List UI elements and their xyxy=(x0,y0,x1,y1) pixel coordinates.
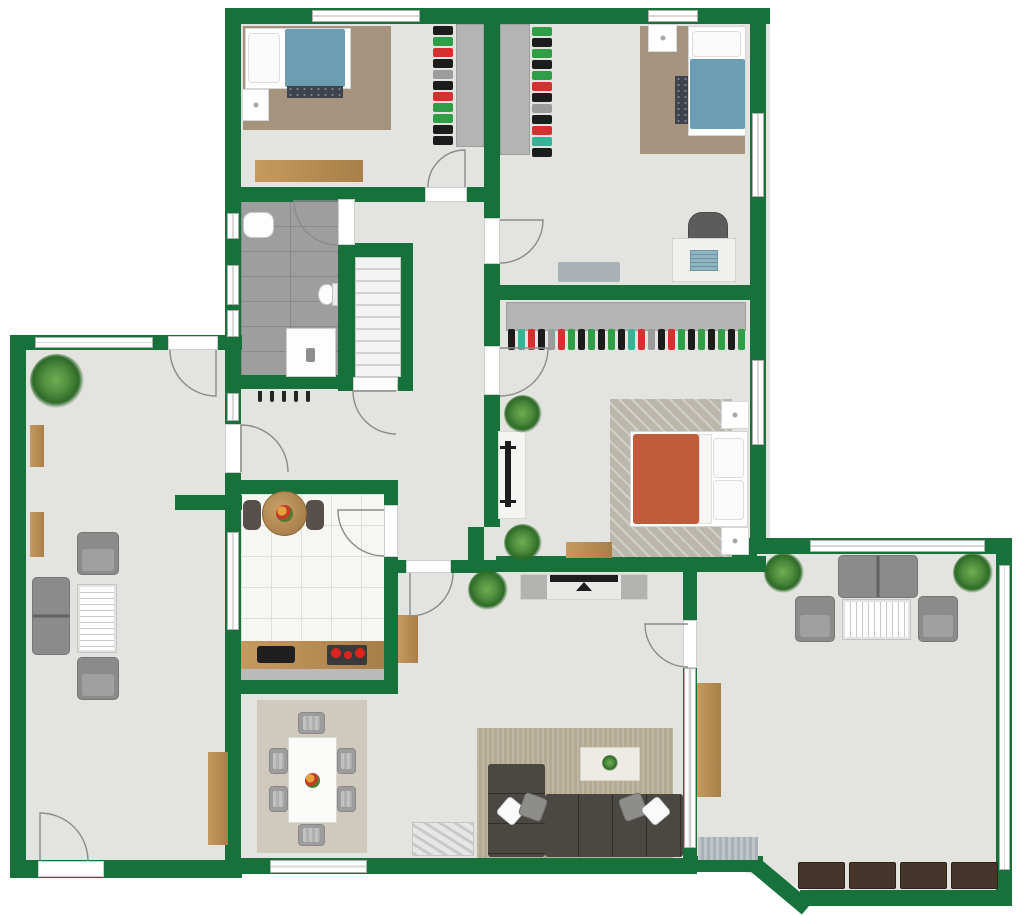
window-sunroom-right xyxy=(999,565,1010,870)
repeat-item xyxy=(270,391,274,402)
repeat-item xyxy=(608,329,615,350)
repeat-item xyxy=(532,60,552,69)
window-bedroom2-top xyxy=(648,10,698,22)
door-threshold-hall-living xyxy=(406,560,451,573)
repeat-item xyxy=(738,329,745,350)
master-nightstand-bottom xyxy=(721,527,749,555)
living-speaker-right xyxy=(621,575,647,599)
kitchen-burner-2 xyxy=(344,651,352,659)
door-threshold-lounge-top xyxy=(168,336,218,350)
repeat-item xyxy=(282,391,286,402)
bedroom2-nightstand xyxy=(648,24,677,52)
window-bathroom-2 xyxy=(227,265,239,305)
sunroom-plant-right xyxy=(953,553,993,593)
bedroom2-blanket xyxy=(690,59,745,129)
lounge-shelf-top xyxy=(30,425,44,467)
kitchen-fruit-bowl xyxy=(276,505,293,522)
living-coffee-table-plant xyxy=(602,755,618,771)
master-clothes-rail xyxy=(508,329,745,351)
repeat-item xyxy=(306,391,310,402)
repeat-item xyxy=(532,71,552,80)
sunroom-coffee-table xyxy=(843,600,910,639)
door-threshold-lounge-entry xyxy=(38,861,104,877)
dining-chair-right-1 xyxy=(337,748,356,774)
bedroom1-pillow xyxy=(248,33,280,83)
repeat-item xyxy=(951,862,998,889)
bedroom1-blanket xyxy=(285,29,345,87)
living-plant xyxy=(468,570,508,610)
shower-fixture xyxy=(306,348,315,362)
lounge-sideboard xyxy=(208,752,228,845)
door-threshold-bathroom xyxy=(338,199,355,245)
repeat-item xyxy=(638,329,645,350)
wall-sunroom-bottom xyxy=(800,890,1012,906)
living-wall-shelf xyxy=(398,615,418,663)
window-entry-hall xyxy=(227,393,239,421)
repeat-item xyxy=(588,329,595,350)
repeat-item xyxy=(433,70,453,79)
bedroom1-wardrobe xyxy=(456,24,484,147)
kitchen-chair-left xyxy=(243,500,261,530)
bedroom1-nightstand xyxy=(242,89,269,121)
master-tv-foot-top xyxy=(500,446,516,449)
repeat-item xyxy=(532,49,552,58)
repeat-item xyxy=(532,82,552,91)
repeat-item xyxy=(708,329,715,350)
repeat-item xyxy=(532,148,552,157)
master-plant-top xyxy=(504,395,542,433)
wall-kitchen-bottom xyxy=(228,680,398,694)
door-threshold-sunroom xyxy=(683,620,697,668)
kitchen-counter-edge xyxy=(241,669,384,680)
bathtub xyxy=(243,212,274,238)
dining-chair-left-1 xyxy=(269,748,288,774)
wall-kitchen-top xyxy=(228,480,398,494)
repeat-item xyxy=(528,329,535,350)
master-tv xyxy=(505,441,511,507)
repeat-item xyxy=(648,329,655,350)
repeat-item xyxy=(433,103,453,112)
glass-partition xyxy=(684,668,696,848)
repeat-item xyxy=(688,329,695,350)
wall-bedroom2-bottom xyxy=(484,285,766,300)
bedroom2-side-runner xyxy=(675,76,688,124)
repeat-item xyxy=(658,329,665,350)
dining-chair-bottom xyxy=(298,824,325,846)
kitchen-chair-right xyxy=(306,500,324,530)
coat-rack xyxy=(258,391,312,403)
door-threshold-master xyxy=(484,346,500,395)
staircase xyxy=(355,257,401,377)
repeat-item xyxy=(433,48,453,57)
wall-bathroom-right xyxy=(338,243,355,391)
repeat-item xyxy=(568,329,575,350)
door-threshold-entry-lounge xyxy=(225,424,241,473)
repeat-item xyxy=(433,26,453,35)
lounge-loveseat xyxy=(32,577,70,655)
repeat-item xyxy=(668,329,675,350)
repeat-item xyxy=(532,38,552,47)
repeat-item xyxy=(538,329,545,350)
lounge-shelf-bottom xyxy=(30,512,44,557)
window-dining-bottom xyxy=(270,860,367,873)
repeat-item xyxy=(698,329,705,350)
bedroom2-wardrobe xyxy=(500,24,530,155)
window-bedroom1-top xyxy=(312,10,420,22)
repeat-item xyxy=(548,329,555,350)
repeat-item xyxy=(508,329,515,350)
repeat-item xyxy=(728,329,735,350)
kitchen-sink xyxy=(257,646,295,663)
dining-chair-left-2 xyxy=(269,786,288,812)
window-sunroom-top xyxy=(810,540,985,552)
dining-chair-top xyxy=(298,712,325,734)
repeat-item xyxy=(532,115,552,124)
repeat-item xyxy=(718,329,725,350)
repeat-item xyxy=(433,92,453,101)
sunroom-doormat xyxy=(698,837,758,860)
lounge-plant xyxy=(30,354,84,408)
bedroom1-foot-runner xyxy=(287,86,343,98)
master-closet-panel xyxy=(506,302,746,331)
repeat-item xyxy=(518,329,525,350)
repeat-item xyxy=(433,81,453,90)
window-kitchen-left xyxy=(227,532,239,630)
kitchen-burner-1 xyxy=(331,648,341,658)
repeat-item xyxy=(433,125,453,134)
window-lounge-top xyxy=(35,337,153,348)
repeat-item xyxy=(678,329,685,350)
sunroom-armchair-right xyxy=(918,596,958,642)
living-tv xyxy=(550,575,618,582)
wall-bathroom-bottom xyxy=(225,375,355,389)
master-tv-stand xyxy=(498,431,526,519)
door-threshold-stairs xyxy=(353,377,398,391)
repeat-item xyxy=(532,137,552,146)
window-bathroom-1 xyxy=(227,213,239,239)
door-threshold-bedroom1 xyxy=(425,187,467,202)
bedroom1-clothes-rail xyxy=(433,26,457,148)
lounge-armchair-bottom xyxy=(77,657,119,700)
master-bed-sheet-fold xyxy=(699,434,712,524)
repeat-item xyxy=(532,93,552,102)
master-bench xyxy=(566,542,612,558)
repeat-item xyxy=(433,136,453,145)
master-plant-bottom xyxy=(504,524,542,562)
window-master-right xyxy=(752,360,764,445)
bedroom2-floor-mat xyxy=(558,262,620,282)
door-threshold-bedroom2 xyxy=(484,218,500,264)
repeat-item xyxy=(558,329,565,350)
door-threshold-kitchen xyxy=(384,505,398,557)
repeat-item xyxy=(798,862,845,889)
toilet-tank xyxy=(332,283,338,306)
repeat-item xyxy=(433,37,453,46)
repeat-item xyxy=(532,126,552,135)
floor-plan xyxy=(0,0,1024,915)
dining-fruit-bowl xyxy=(305,773,320,788)
wall-lounge-left xyxy=(10,335,26,878)
repeat-item xyxy=(628,329,635,350)
master-pillow-bottom xyxy=(713,480,744,520)
kitchen-burner-3 xyxy=(355,648,365,658)
wall-right-upper xyxy=(750,8,766,554)
master-bed-blanket xyxy=(633,434,699,524)
master-pillow-top xyxy=(713,438,744,478)
repeat-item xyxy=(618,329,625,350)
sunroom-cabinet xyxy=(697,683,721,797)
wall-lounge-stub xyxy=(175,495,242,510)
sunroom-storage-chests xyxy=(798,862,992,888)
living-speaker-left xyxy=(521,575,547,599)
repeat-item xyxy=(258,391,262,402)
master-nightstand-top xyxy=(721,401,749,429)
sunroom-armchair-left xyxy=(795,596,835,642)
master-tv-foot-bottom xyxy=(500,500,516,503)
repeat-item xyxy=(532,104,552,113)
repeat-item xyxy=(849,862,896,889)
sunroom-plant-left xyxy=(764,553,804,593)
bedroom1-dresser xyxy=(255,160,363,182)
repeat-item xyxy=(578,329,585,350)
window-bedroom2-right xyxy=(752,113,764,197)
bedroom2-laptop xyxy=(690,250,718,271)
bedroom2-pillow xyxy=(692,31,741,57)
repeat-item xyxy=(433,59,453,68)
repeat-item xyxy=(900,862,947,889)
dining-chair-right-2 xyxy=(337,786,356,812)
repeat-item xyxy=(294,391,298,402)
living-ottoman xyxy=(412,822,474,856)
wall-stairs-right xyxy=(401,243,413,391)
repeat-item xyxy=(598,329,605,350)
window-bathroom-3 xyxy=(227,310,239,337)
sunroom-loveseat xyxy=(838,555,918,598)
repeat-item xyxy=(433,114,453,123)
lounge-armchair-top xyxy=(77,532,119,575)
repeat-item xyxy=(532,27,552,36)
lounge-coffee-table xyxy=(78,585,116,652)
bedroom2-clothes-rail xyxy=(532,27,554,153)
